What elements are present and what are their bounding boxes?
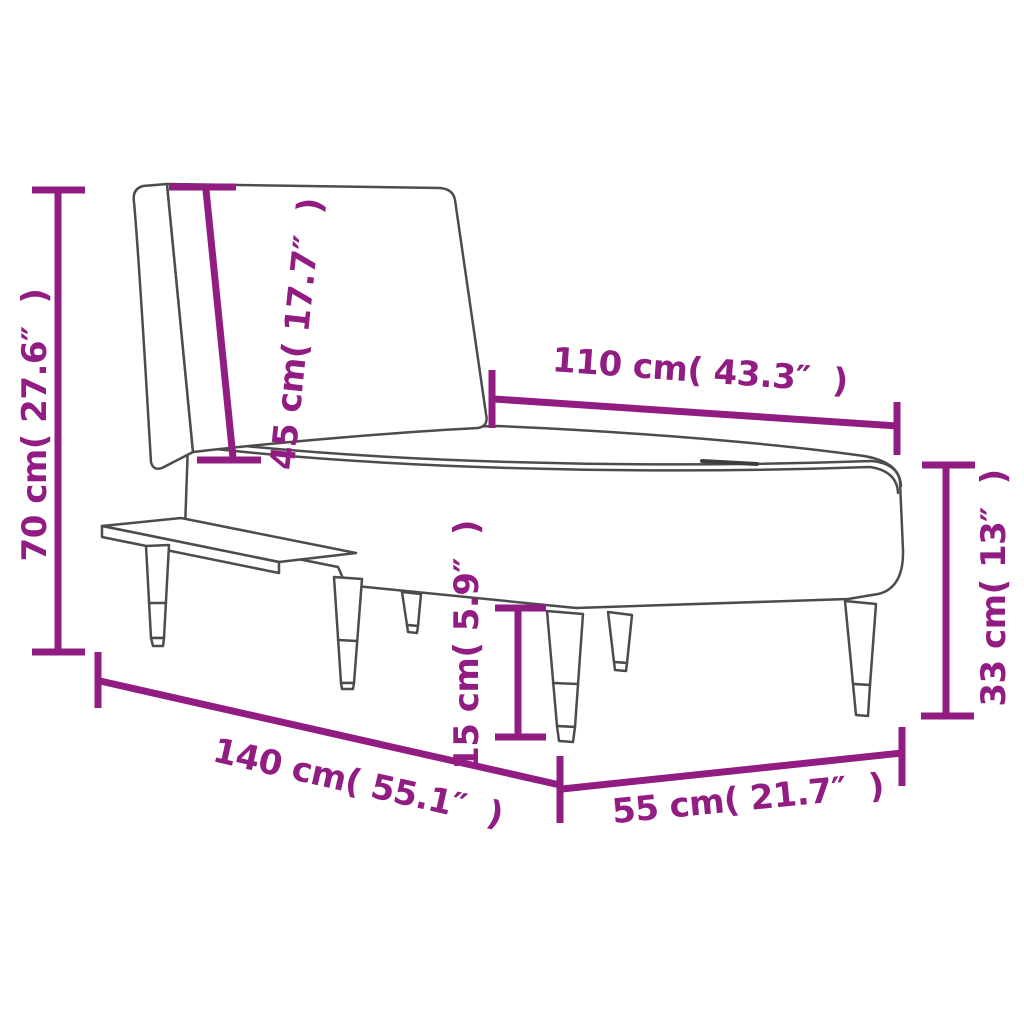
leg-foot — [151, 638, 164, 646]
leg-taper — [547, 611, 583, 727]
product-dimension-diagram: 70 cm( 27.6″ ) 45 cm( 17.7″ ) 110 cm( 43… — [0, 0, 1024, 1024]
leg-joint-line — [338, 640, 357, 641]
dim-label-leg-height: 15 cm( 5.9″ ) — [447, 520, 487, 770]
leg-front-right — [845, 601, 876, 716]
dim-line-side-height — [921, 465, 975, 716]
leg-taper — [608, 612, 632, 663]
leg-taper — [845, 601, 876, 685]
leg-foot — [614, 662, 627, 671]
leg-foot — [853, 684, 870, 716]
leg-foot — [341, 683, 354, 689]
leg-foot — [557, 726, 575, 742]
chaise-drawing-canvas — [0, 0, 1024, 1024]
dim-label-back-height: 70 cm( 27.6″ ) — [15, 289, 55, 562]
leg-front-middle — [547, 611, 583, 742]
leg-front-left — [334, 577, 362, 689]
leg-joint-line — [553, 683, 578, 684]
leg-taper — [146, 545, 169, 638]
leg-taper — [334, 577, 362, 683]
leg-foot — [407, 625, 418, 633]
leg-rear-middle — [608, 612, 632, 671]
dim-line-leg-height — [495, 608, 546, 737]
leg-rear-left — [402, 592, 421, 633]
leg-taper — [402, 592, 421, 626]
dim-label-side-height: 33 cm( 13″ ) — [974, 469, 1014, 706]
leg-shelf — [146, 545, 169, 646]
